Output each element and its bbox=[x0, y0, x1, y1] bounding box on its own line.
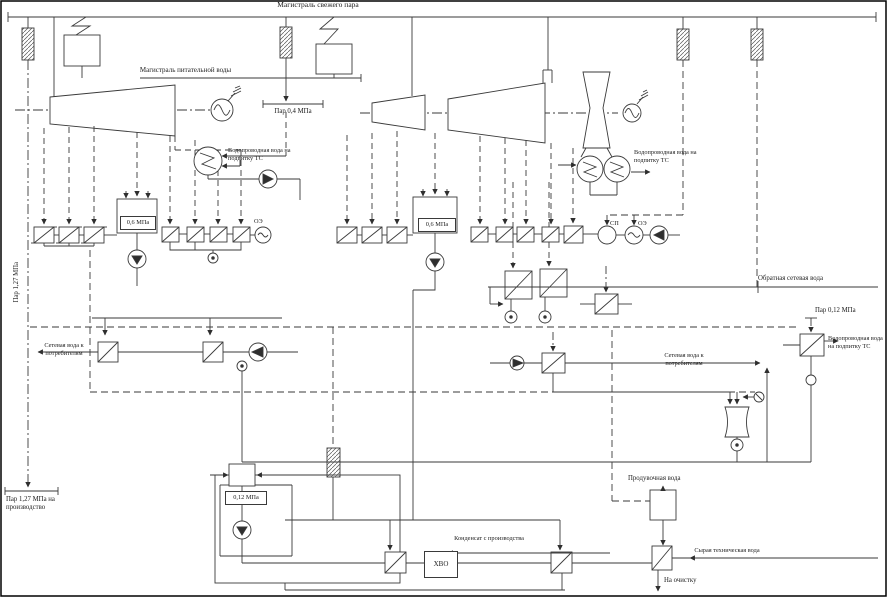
deaerator-2-pressure-badge: 0,6 МПа bbox=[418, 218, 456, 232]
deaerator-1-pressure-badge: 0,6 МПа bbox=[120, 216, 156, 230]
reducing-valve-4 bbox=[751, 17, 763, 60]
chp-plant-flow-diagram: Магистраль свежего пара Магистраль питат… bbox=[0, 0, 888, 598]
reducing-valve-1 bbox=[22, 17, 34, 60]
turbine-1 bbox=[15, 17, 210, 136]
turbine-2 bbox=[360, 17, 618, 148]
label-feed-water-main: Магистраль питательной воды bbox=[128, 66, 243, 75]
label-tap-water-makeup-1: Водопроводная вода на подпитку ТС bbox=[228, 147, 308, 163]
reducing-valve-2 bbox=[280, 17, 292, 58]
label-blowdown-water: Продувочная вода bbox=[628, 475, 708, 483]
generator-2 bbox=[623, 90, 648, 122]
lp-heaters-2 bbox=[471, 226, 598, 243]
deaerator-1 bbox=[117, 191, 157, 286]
water-treatment-block: ХВО bbox=[424, 551, 458, 578]
label-tap-water-makeup-2: Водопроводная вода на подпитку ТС bbox=[634, 149, 714, 165]
boiler-2 bbox=[316, 17, 352, 78]
cooling-tower-circuit bbox=[242, 356, 816, 462]
feed-water-main-line bbox=[140, 74, 361, 82]
deaerator-2 bbox=[413, 189, 457, 290]
right-network-circuit bbox=[490, 332, 760, 404]
label-main-ejector-1: ОЭ bbox=[254, 218, 263, 226]
hp-heaters-2 bbox=[337, 227, 413, 243]
schematic-graphics bbox=[0, 0, 888, 598]
label-steam-0-4: Пар 0,4 МПа bbox=[258, 108, 328, 116]
label-network-water-consumers-1: Сетевая вода к потребителям bbox=[32, 342, 96, 358]
lp-heaters-1 bbox=[162, 227, 250, 263]
boiler-1 bbox=[64, 17, 100, 78]
left-network-circuit bbox=[38, 318, 298, 462]
label-raw-technical-water: Сырая техническая вода bbox=[690, 547, 764, 555]
label-network-water-consumers-2: Сетевая вода к потребителям bbox=[652, 352, 716, 368]
label-fresh-steam-main: Магистраль свежего пара bbox=[253, 0, 383, 9]
label-return-network-water: Обратная сетевая вода bbox=[758, 275, 878, 283]
label-tap-water-makeup-3: Водопроводная вода на подпитку ТС bbox=[828, 335, 888, 351]
label-steam-0-12: Пар 0,12 МПа bbox=[815, 307, 885, 315]
label-condensate-from-production: Конденсат с производства bbox=[448, 535, 530, 543]
main-ejector-1 bbox=[250, 227, 271, 243]
condensate-pump-2 bbox=[650, 226, 680, 244]
label-network-heater-sp: СП bbox=[610, 220, 619, 228]
psg-network-heaters bbox=[490, 266, 632, 323]
hp-heaters-1 bbox=[31, 227, 117, 246]
fresh-steam-main-line bbox=[8, 12, 876, 22]
blowdown-circuit bbox=[612, 486, 878, 591]
bottom-treatment-section bbox=[210, 290, 652, 590]
deaerator-atmospheric-pressure-badge: 0,12 МПа bbox=[225, 491, 267, 505]
label-steam-1-27-production: Пар 1,27 МПа на производство bbox=[6, 496, 78, 513]
label-steam-1-27-vertical: Пар 1,27 МПа bbox=[13, 247, 21, 317]
label-main-ejector-2: ОЭ bbox=[638, 220, 647, 228]
reducing-valve-3 bbox=[677, 17, 689, 60]
label-to-treatment: На очистку bbox=[664, 577, 724, 585]
generator-1 bbox=[211, 86, 241, 121]
turbine-2-extraction-lines bbox=[347, 131, 573, 268]
